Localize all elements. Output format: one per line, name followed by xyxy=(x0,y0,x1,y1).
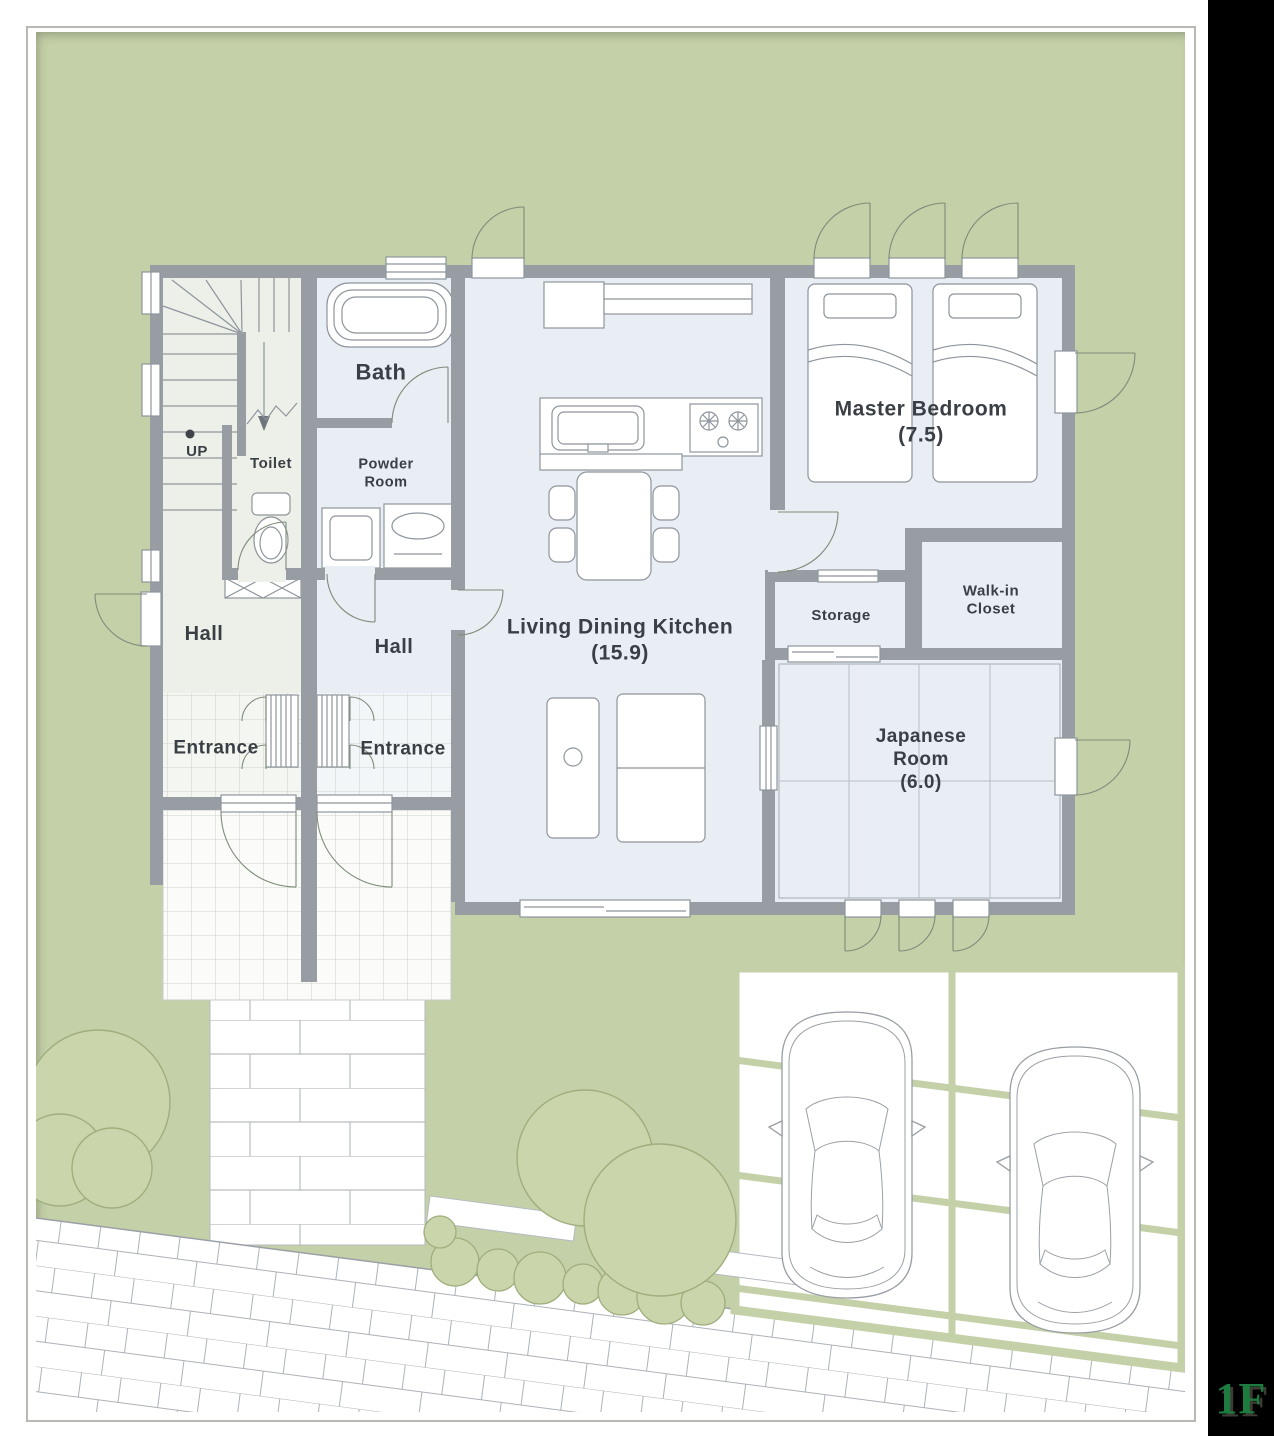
toilet-icon xyxy=(252,493,290,563)
room-label-toilet: Toilet xyxy=(250,455,292,473)
room-name: Hall xyxy=(185,622,224,646)
room-name: Entrance xyxy=(360,737,445,760)
room-label-ldk: Living Dining Kitchen (15.9) xyxy=(507,614,733,665)
car-icon xyxy=(997,1047,1153,1333)
room-name: Storage xyxy=(811,607,870,625)
room-area: (7.5) xyxy=(898,422,944,448)
room-name: Japanese Room xyxy=(861,725,981,771)
room-name: Toilet xyxy=(250,455,292,473)
room-label-hall-left: Hall xyxy=(185,622,224,646)
floor-plan-page: Bath Toilet Powder Room Hall Hall Entran… xyxy=(0,0,1274,1436)
room-name: Walk-in Closet xyxy=(947,583,1035,620)
room-area: (6.0) xyxy=(900,772,942,795)
room-name: Hall xyxy=(375,635,414,659)
sofa-set xyxy=(547,694,705,842)
floor-badge: 1F xyxy=(1216,1373,1267,1424)
room-name: Master Bedroom xyxy=(835,396,1008,422)
room-label-entrance-right: Entrance xyxy=(360,737,445,760)
room-name: Powder Room xyxy=(344,456,428,491)
site-plan-svg xyxy=(36,32,1185,1412)
room-label-hall-right: Hall xyxy=(375,635,414,659)
bathtub-icon xyxy=(327,283,453,347)
room-label-japanese-room: Japanese Room (6.0) xyxy=(861,725,981,795)
outside-strip: 1F xyxy=(1208,0,1274,1436)
room-name: Bath xyxy=(356,360,407,387)
car-icon xyxy=(769,1012,925,1298)
room-label-storage: Storage xyxy=(811,607,870,625)
room-area: (15.9) xyxy=(591,640,649,666)
room-label-master-bedroom: Master Bedroom (7.5) xyxy=(835,396,1008,447)
room-label-entrance-left: Entrance xyxy=(173,736,258,759)
room-name: Entrance xyxy=(173,736,258,759)
up-text: UP xyxy=(186,443,208,461)
room-label-powder-room: Powder Room xyxy=(344,456,428,491)
ground-layer xyxy=(36,968,1185,1412)
room-label-bath: Bath xyxy=(356,360,407,387)
stairs-up-label: UP xyxy=(186,443,208,461)
room-label-walk-in-closet: Walk-in Closet xyxy=(947,583,1035,620)
vanity-icon xyxy=(384,504,452,568)
room-name: Living Dining Kitchen xyxy=(507,614,733,640)
washer-icon xyxy=(322,508,380,568)
